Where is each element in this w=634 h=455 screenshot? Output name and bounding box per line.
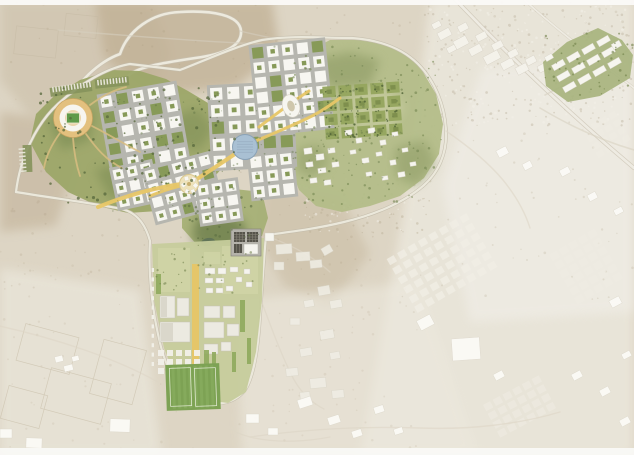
masterplan-canvas	[0, 0, 634, 455]
wash-bottomleft	[0, 268, 162, 455]
plaza-center	[187, 182, 191, 186]
top-strip	[0, 0, 634, 5]
district-d	[248, 37, 334, 137]
bottom-strip	[0, 448, 634, 455]
stadium-pitch	[67, 113, 80, 123]
masterplan-svg	[0, 0, 634, 455]
district-b2	[194, 177, 244, 227]
grid-building-annex	[265, 233, 274, 241]
district-c2	[247, 150, 299, 202]
